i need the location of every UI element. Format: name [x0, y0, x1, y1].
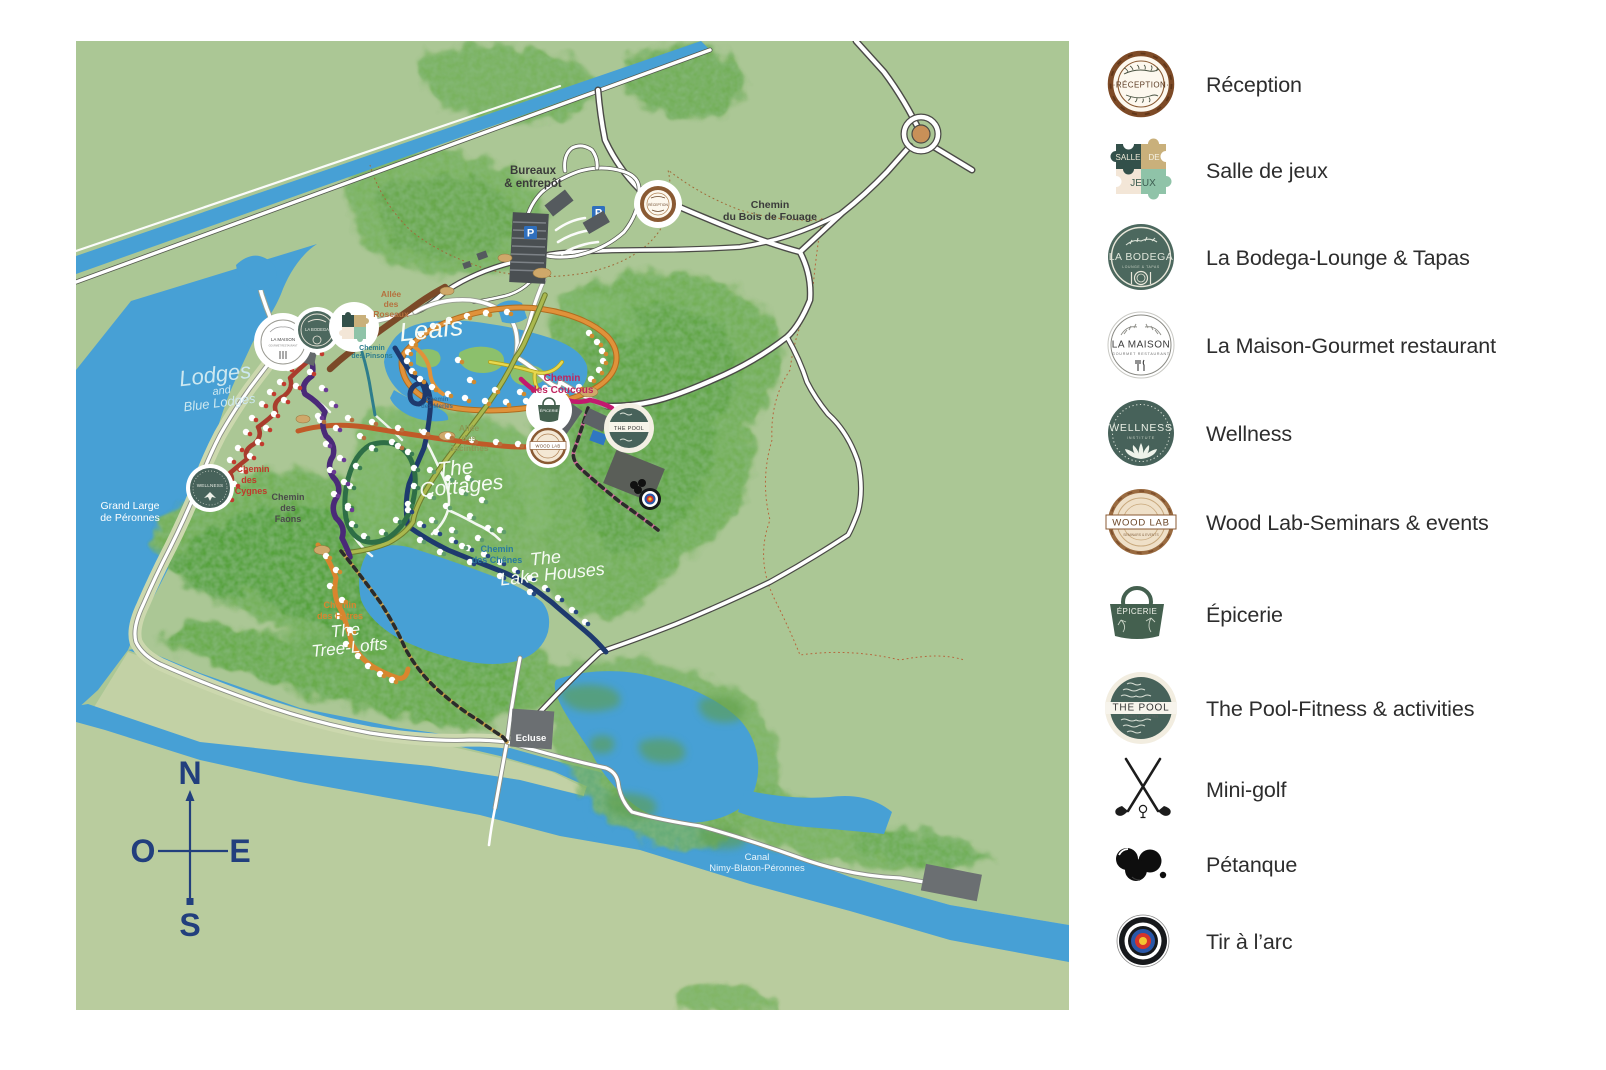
svg-text:LA BODEGA: LA BODEGA: [305, 327, 329, 332]
svg-text:Bureaux: Bureaux: [510, 165, 557, 177]
svg-text:Grand Large: Grand Large: [101, 500, 160, 512]
svg-text:S: S: [179, 907, 200, 943]
svg-text:P: P: [527, 228, 534, 240]
svg-text:des Hêtres: des Hêtres: [317, 611, 363, 621]
svg-text:GOURMET RESTAURANT: GOURMET RESTAURANT: [269, 345, 298, 348]
svg-text:Chemin: Chemin: [751, 199, 790, 211]
svg-text:WELLNESS: WELLNESS: [197, 483, 224, 488]
svg-text:Wood Lab-Seminars & events: Wood Lab-Seminars & events: [1206, 511, 1489, 535]
svg-text:GOURMET RESTAURANT: GOURMET RESTAURANT: [1112, 352, 1170, 356]
svg-text:Chemin: Chemin: [426, 396, 449, 403]
svg-text:ÉPICERIE: ÉPICERIE: [540, 408, 559, 413]
svg-text:des Coucous: des Coucous: [531, 385, 594, 396]
svg-text:Chemin: Chemin: [323, 600, 356, 610]
svg-text:Chemin: Chemin: [544, 373, 581, 384]
svg-text:ÉPICERIE: ÉPICERIE: [1117, 607, 1158, 616]
svg-text:de Péronnes: de Péronnes: [100, 512, 160, 524]
svg-text:Tir à l’arc: Tir à l’arc: [1206, 930, 1293, 954]
svg-text:La Maison-Gourmet restaurant: La Maison-Gourmet restaurant: [1206, 334, 1496, 358]
svg-text:SEMINARS & EVENTS: SEMINARS & EVENTS: [1123, 533, 1159, 537]
svg-text:du Bois de Fouage: du Bois de Fouage: [723, 211, 817, 223]
svg-text:E: E: [229, 833, 250, 869]
svg-text:Allée: Allée: [381, 289, 402, 299]
svg-text:THE POOL: THE POOL: [614, 426, 644, 432]
svg-text:des: des: [241, 475, 257, 485]
svg-text:Roseaux: Roseaux: [373, 309, 409, 319]
svg-text:N: N: [178, 755, 201, 791]
svg-text:Chemin: Chemin: [271, 492, 304, 502]
svg-text:Nimy-Blaton-Péronnes: Nimy-Blaton-Péronnes: [709, 863, 805, 874]
svg-text:WELLNESS: WELLNESS: [1109, 422, 1173, 434]
svg-text:Faons: Faons: [275, 514, 302, 524]
svg-text:des Pinsons: des Pinsons: [351, 353, 392, 360]
svg-text:THE POOL: THE POOL: [1113, 703, 1170, 714]
svg-text:DE: DE: [1148, 153, 1159, 162]
svg-text:Mini-golf: Mini-golf: [1206, 778, 1286, 802]
svg-text:LA BODEGA: LA BODEGA: [1109, 251, 1174, 263]
svg-text:LOUNGE & TAPAS: LOUNGE & TAPAS: [1122, 265, 1160, 269]
svg-text:WOOD LAB: WOOD LAB: [536, 444, 561, 449]
svg-text:La Bodega-Lounge & Tapas: La Bodega-Lounge & Tapas: [1206, 246, 1470, 270]
svg-text:WOOD LAB: WOOD LAB: [1112, 518, 1170, 529]
svg-text:des: des: [280, 503, 296, 513]
svg-text:des: des: [462, 433, 477, 443]
svg-text:Salle de jeux: Salle de jeux: [1206, 159, 1328, 183]
svg-text:& entrepôt: & entrepôt: [504, 178, 562, 190]
svg-text:RÉCEPTION: RÉCEPTION: [648, 202, 668, 207]
svg-text:·RÉCEPTION·: ·RÉCEPTION·: [1113, 81, 1169, 90]
svg-text:des: des: [384, 299, 399, 309]
svg-text:O: O: [131, 833, 156, 869]
svg-text:LA MAISON: LA MAISON: [271, 337, 295, 342]
svg-text:des Merles: des Merles: [421, 403, 454, 410]
svg-text:Épicerie: Épicerie: [1206, 602, 1283, 627]
svg-text:Chemin: Chemin: [359, 345, 385, 352]
svg-text:Pétanque: Pétanque: [1206, 853, 1297, 877]
svg-text:Wellness: Wellness: [1206, 422, 1292, 446]
svg-text:Chemin: Chemin: [480, 544, 513, 554]
svg-text:Ecluse: Ecluse: [516, 733, 547, 744]
svg-text:Allée: Allée: [459, 423, 480, 433]
svg-text:Réception: Réception: [1206, 73, 1302, 97]
svg-text:Canal: Canal: [745, 852, 770, 863]
svg-text:JEUX: JEUX: [1130, 178, 1156, 189]
svg-text:Cygnes: Cygnes: [235, 486, 268, 496]
svg-text:LA MAISON: LA MAISON: [1112, 340, 1170, 351]
svg-text:INSTITUTE: INSTITUTE: [1127, 436, 1156, 440]
svg-text:SALLE: SALLE: [1116, 153, 1141, 162]
svg-text:des Chênes: des Chênes: [472, 555, 523, 565]
svg-text:The Pool-Fitness & activities: The Pool-Fitness & activities: [1206, 697, 1474, 721]
svg-text:Jacinthes: Jacinthes: [449, 443, 488, 453]
svg-text:FITNESS & ACTIVITIES: FITNESS & ACTIVITIES: [1124, 715, 1159, 719]
svg-text:Chemin: Chemin: [236, 464, 269, 474]
